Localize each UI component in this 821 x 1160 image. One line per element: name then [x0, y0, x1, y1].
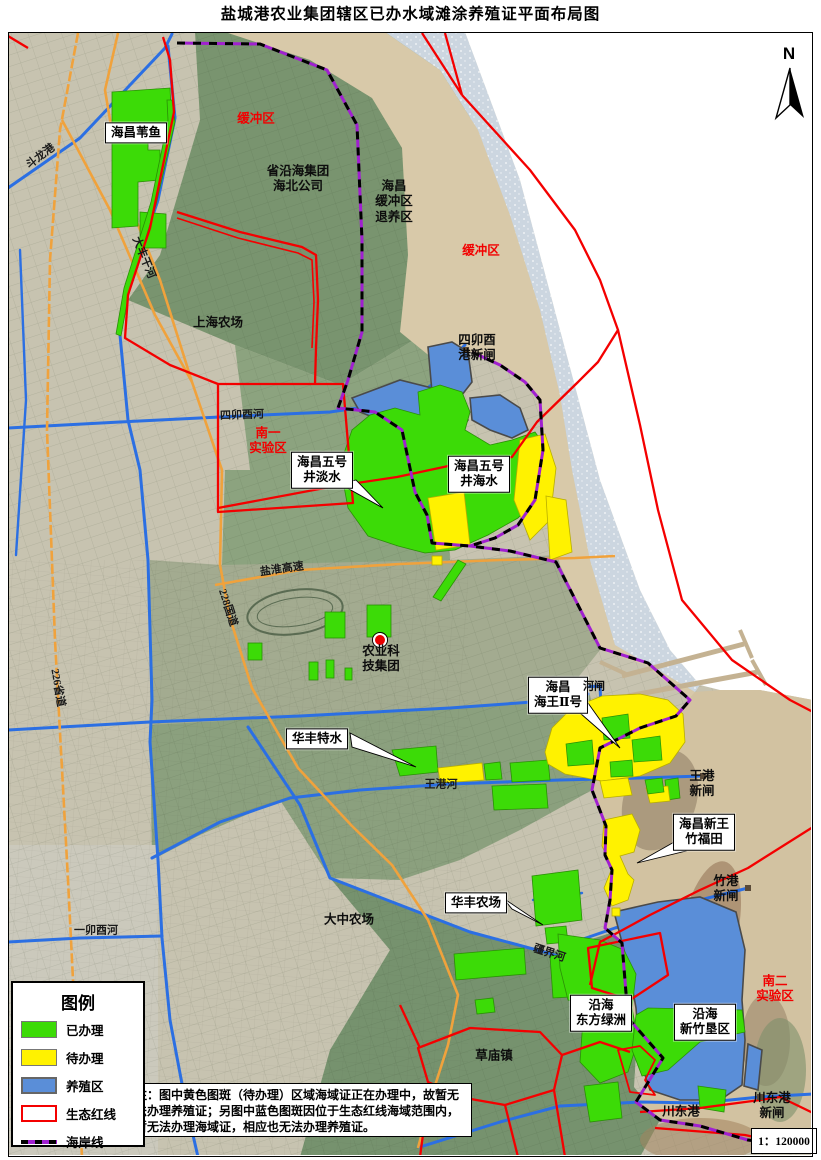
zone-green-sm: [309, 662, 318, 680]
zone-yellow-no5a: [428, 492, 470, 550]
legend-swatch-icon: [21, 1140, 57, 1144]
legend-swatch-icon: [21, 1077, 57, 1094]
zone-yellow-sm: [432, 556, 442, 565]
legend-swatch-icon: [21, 1049, 57, 1066]
legend-swatch-icon: [21, 1021, 57, 1038]
scale-text: 1：120000: [758, 1133, 810, 1149]
zone-green-wg2: [510, 760, 550, 782]
north-arrow: N: [766, 44, 812, 126]
legend-label: 生态红线: [66, 1104, 116, 1123]
zone-green-sm: [326, 660, 334, 678]
zone-green-hf3: [454, 948, 526, 980]
zone-green-sm: [345, 668, 352, 680]
legend-item-1: 待办理: [21, 1045, 143, 1070]
legend-label: 已办理: [66, 1020, 104, 1039]
hq-marker: [373, 633, 388, 648]
zone-green-wg1: [484, 762, 502, 780]
map-sheet: 盐城港农业集团辖区已办水域滩涂养殖证平面布局图: [0, 0, 821, 1160]
north-letter: N: [766, 44, 812, 64]
zone-blue-small-east: [744, 1044, 762, 1090]
zone-green-sm: [325, 612, 345, 638]
north-arrow-icon: [766, 64, 812, 124]
zone-green-sm2: [475, 998, 495, 1014]
legend-items: 已办理待办理养殖区生态红线海岸线: [13, 1017, 143, 1154]
zone-green-sm: [248, 643, 262, 660]
legend-label: 海岸线: [66, 1132, 104, 1151]
zone-green-bottom: [584, 1082, 622, 1122]
legend-item-3: 生态红线: [21, 1101, 143, 1126]
legend-title: 图例: [13, 989, 143, 1014]
legend-label: 待办理: [66, 1048, 104, 1067]
note-text: 注：图中黄色图斑（待办理）区域海域证正在办理中，故暂无法办理养殖证；另图中蓝色图…: [135, 1087, 465, 1136]
legend: 图例 已办理待办理养殖区生态红线海岸线: [11, 981, 145, 1147]
legend-item-0: 已办理: [21, 1017, 143, 1042]
zone-green-wg3: [492, 784, 548, 810]
legend-item-2: 养殖区: [21, 1073, 143, 1098]
note-box: 注：图中黄色图斑（待办理）区域海域证正在办理中，故暂无法办理养殖证；另图中蓝色图…: [128, 1083, 472, 1137]
zone-yellow-hw-tail: [600, 778, 632, 798]
zone-yellow-sm2: [612, 908, 620, 916]
legend-label: 养殖区: [66, 1076, 104, 1095]
zone-green-huafeng-farm: [532, 870, 582, 926]
legend-item-4: 海岸线: [21, 1129, 143, 1154]
legend-swatch-icon: [21, 1105, 57, 1122]
scale-box: 1：120000: [751, 1128, 817, 1154]
